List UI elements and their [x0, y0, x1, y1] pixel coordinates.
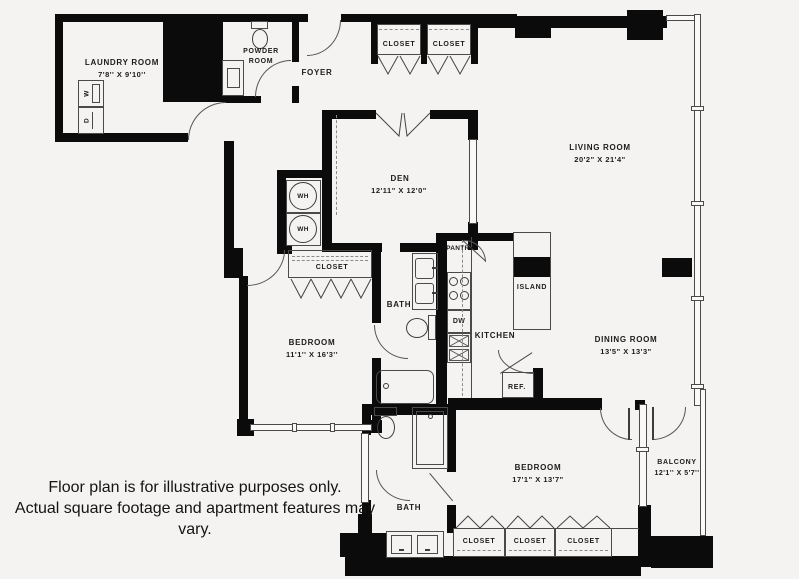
window-mullion-tick [292, 423, 297, 432]
wall-bedroom1-left [239, 276, 248, 426]
balcony-dims: 12'1'' X 5'7'' [648, 469, 706, 478]
wall-corridor-bottom [448, 398, 602, 410]
closet-bedroom2-2-label: CLOSET [505, 537, 555, 547]
wall-hall-vertical [224, 141, 234, 248]
tub-drain [383, 383, 389, 389]
shower-inner [416, 411, 444, 465]
washer-box [78, 80, 104, 107]
closet-rod-line [457, 550, 501, 551]
wall-closet-mullion-3 [471, 22, 478, 64]
bedroom2-label: BEDROOM [491, 463, 585, 473]
wall-wh-closet-top [280, 170, 322, 178]
water-heater-label-2: WH [289, 226, 317, 233]
wall-living-column [662, 258, 692, 277]
window-living-top [666, 15, 696, 21]
bedroom2-dims: 17'1" X 13'7" [491, 475, 585, 484]
den-label: DEN [378, 174, 422, 184]
bifold-door [506, 514, 555, 529]
closet-bedroom1-label: CLOSET [292, 263, 372, 273]
den-ceiling-break [336, 115, 337, 215]
window-mullion-tick [636, 447, 649, 452]
bedroom1-dims: 11'1'' X 16'3'' [267, 350, 357, 359]
washer-label: W [84, 89, 91, 99]
bifold-door [290, 278, 372, 302]
wall-powder-right-upper [292, 20, 299, 62]
floor-plan: CLOSET CLOSET W D WH WH CLOSET [0, 0, 799, 579]
wall-powder-right-stub [292, 86, 299, 103]
bifold-door [556, 514, 611, 529]
window-mullion-tick [330, 423, 335, 432]
wall-den-left [322, 110, 332, 250]
window-bedroom1-south [250, 424, 372, 431]
wall-balcony-horizontal [651, 536, 713, 568]
bath1-toilet-tank [428, 315, 436, 340]
bath2-toilet-tank [374, 407, 397, 416]
bifold-door [427, 55, 471, 77]
island-cooktop [514, 257, 550, 277]
closet-shelf-line [292, 256, 368, 257]
bedroom1-label: BEDROOM [267, 338, 357, 348]
wall-foyer-top-left [292, 14, 308, 22]
burner [449, 291, 458, 300]
wall-kitchen-top [436, 233, 513, 241]
wall-chase-block [163, 14, 223, 102]
bath2-sink-2 [417, 535, 438, 554]
wall-laundry-left [55, 14, 63, 141]
bath1-label: BATH [381, 300, 417, 310]
dryer-detail [92, 112, 93, 129]
dryer-box [78, 107, 104, 134]
island-box [513, 232, 551, 330]
bath2-sink-1 [391, 535, 412, 554]
closet-shelf-line [429, 29, 469, 30]
sink-basin-x [449, 335, 469, 347]
bath1-toilet-bowl [406, 318, 428, 338]
closet-row-extension [612, 528, 639, 529]
closet-shelf-line [292, 260, 368, 261]
window-mullion-tick [691, 106, 704, 111]
wall-living-top-block-b [627, 10, 663, 40]
wall-living-top-block-a [515, 28, 548, 38]
closet-shelf-line [379, 29, 419, 30]
closet-foyer-1-label: CLOSET [377, 40, 421, 50]
bifold-door [455, 514, 505, 529]
wall-bottom [345, 556, 641, 576]
dining-room-label: DINING ROOM [590, 335, 662, 345]
kitchen-label: KITCHEN [467, 331, 523, 341]
wall-ref-stub [533, 368, 543, 400]
wall-laundry-top [55, 14, 167, 22]
closet-foyer-2-label: CLOSET [427, 40, 471, 50]
wall-den-top-right [430, 110, 472, 119]
living-room-dims: 20'2" X 21'4" [564, 155, 636, 164]
dishwasher-label: DW [447, 318, 471, 325]
faucet-mark [425, 549, 430, 551]
upper-cabinet-line [462, 240, 463, 396]
toilet-tank [251, 21, 268, 29]
bath2-label: BATH [389, 503, 429, 513]
water-heater-label-1: WH [289, 193, 317, 200]
faucet-mark [432, 267, 437, 269]
laundry-label: LAUNDRY ROOM [72, 58, 172, 68]
pantry-label: PANTRY [443, 244, 477, 254]
closet-rod-line [509, 550, 551, 551]
window-wall-right [694, 14, 701, 406]
closet-bedroom2-1-label: CLOSET [453, 537, 505, 547]
bath2-toilet-bowl [377, 416, 395, 439]
faucet-mark [432, 292, 437, 294]
wall-foyer-top-right [341, 14, 377, 22]
bath1-door-arc [374, 325, 408, 359]
dryer-label: D [84, 116, 91, 126]
disclaimer-text: Floor plan is for illustrative purposes … [10, 477, 380, 540]
window-mullion-tick [691, 201, 704, 206]
balcony-door-arc [652, 407, 686, 440]
powder-room-label-1: POWDER [239, 47, 283, 57]
toilet-bowl [252, 29, 268, 49]
shower-head [428, 414, 433, 419]
washer-detail [92, 84, 100, 103]
counter-edge [471, 237, 472, 398]
powder-room-label-2: ROOM [239, 57, 283, 67]
closet-rod-line [559, 550, 608, 551]
wall-bedroom1-left-upper [224, 248, 243, 278]
window-bedroom2-balcony [639, 404, 647, 507]
bedroom2-door-leaf [628, 408, 630, 440]
dining-room-dims: 13'5" X 13'3" [590, 347, 662, 356]
laundry-hall-door-arc [188, 102, 226, 140]
bedroom1-door-arc [247, 250, 285, 286]
den-dims: 12'11" X 12'0" [359, 186, 439, 195]
entry-door-arc [307, 20, 341, 56]
powder-sink-basin [227, 68, 240, 88]
laundry-dims: 7'8'' X 9'10'' [72, 70, 172, 79]
wall-laundry-bottom [55, 133, 188, 142]
wall-bedroom1-bath-upper [372, 243, 381, 323]
wall-powder-bottom [223, 96, 261, 103]
ref-label: REF. [502, 383, 532, 393]
window-mullion-tick [691, 296, 704, 301]
closet-bedroom2-3-label: CLOSET [555, 537, 612, 547]
shower-door-leaf [429, 473, 453, 501]
burner [449, 277, 458, 286]
balcony-door-leaf [652, 407, 654, 440]
window-den-right [469, 139, 477, 224]
island-label: ISLAND [513, 283, 551, 293]
living-room-label: LIVING ROOM [564, 143, 636, 153]
faucet-mark [399, 549, 404, 551]
bath2-door-arc [376, 470, 410, 501]
wall-den-right-upper-block [468, 110, 478, 140]
balcony-label: BALCONY [652, 458, 702, 468]
foyer-label: FOYER [293, 68, 341, 78]
disclaimer-line-2: Actual square footage and apartment feat… [10, 498, 380, 540]
den-double-door [375, 112, 431, 138]
wall-wh-closet-left [277, 170, 286, 250]
wall-bath2-right [447, 405, 456, 472]
bifold-door [377, 55, 421, 77]
disclaimer-line-1: Floor plan is for illustrative purposes … [10, 477, 380, 498]
sink-basin-x [449, 349, 469, 361]
